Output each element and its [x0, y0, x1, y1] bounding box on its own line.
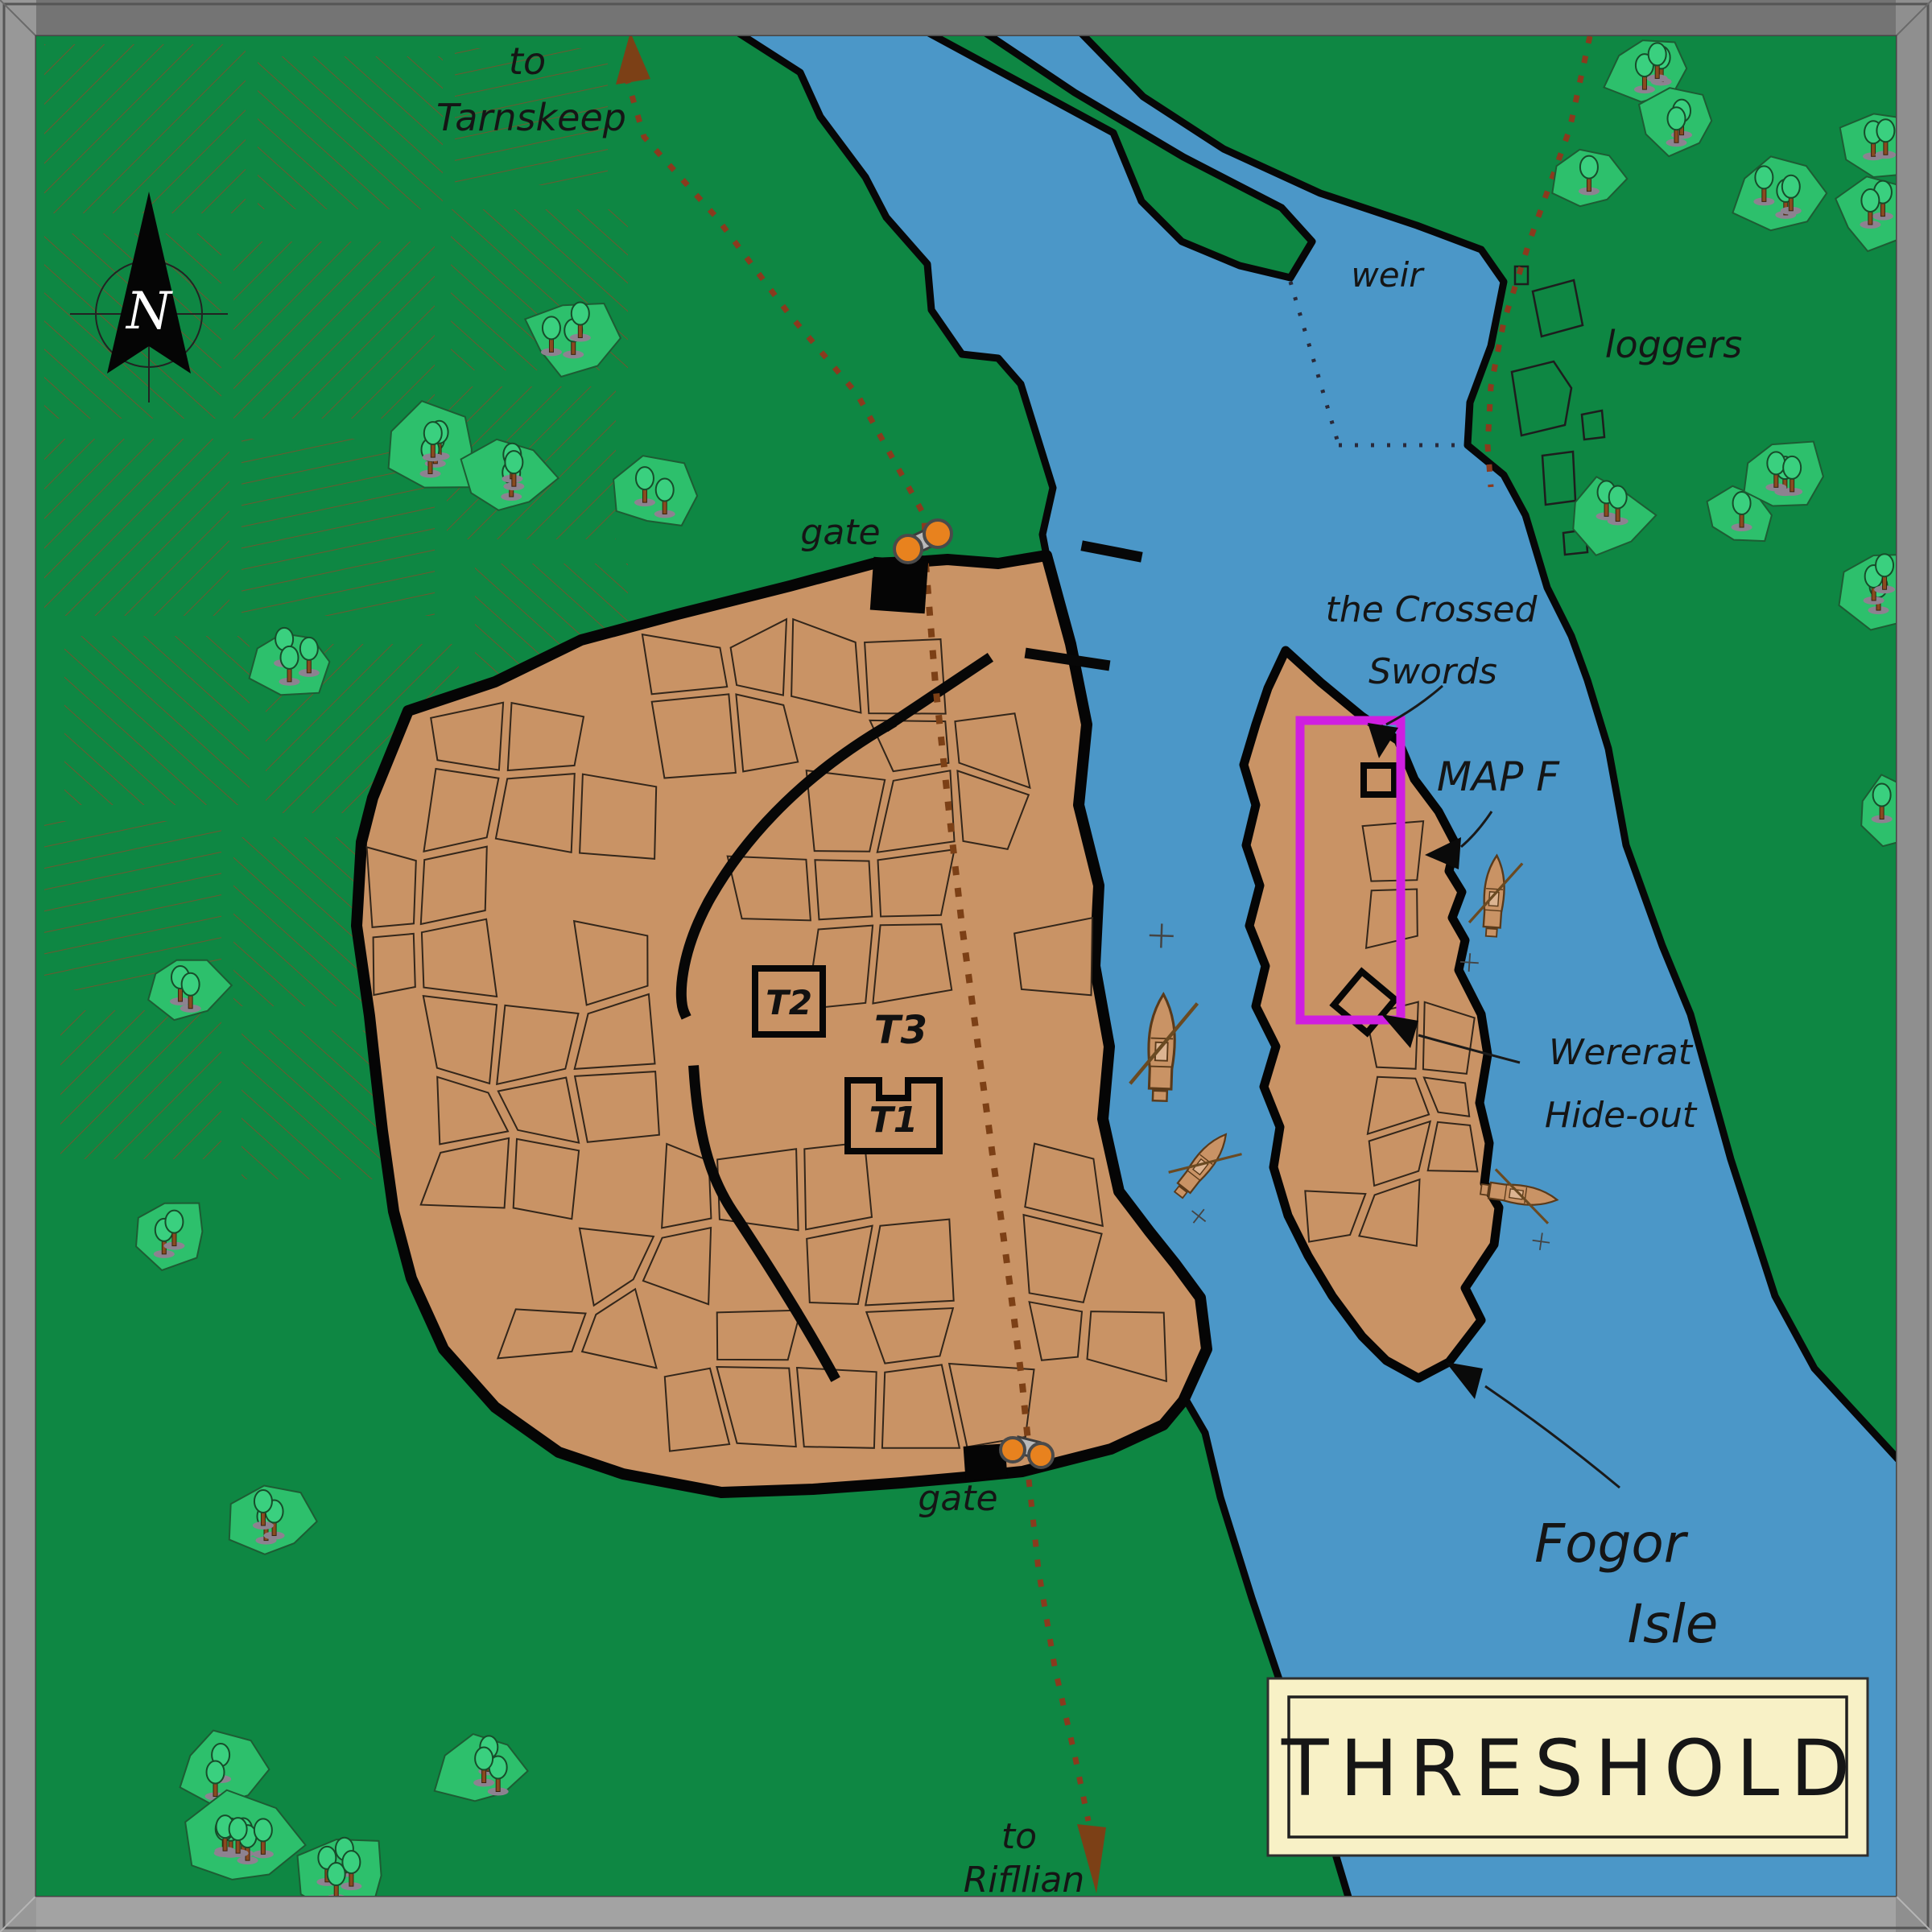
city-block — [652, 694, 736, 778]
tree-icon — [165, 1211, 183, 1233]
label-fogor-isle: Fogor — [1534, 1513, 1689, 1575]
tree-icon — [182, 973, 200, 996]
city-block — [367, 847, 416, 927]
tree-icon — [281, 646, 299, 669]
tree-icon — [1876, 554, 1893, 576]
tree-icon — [505, 451, 522, 473]
city-block — [797, 1368, 877, 1448]
tree-icon — [656, 478, 674, 501]
hatch-patch — [60, 1010, 221, 1159]
compass-north-letter: N — [125, 282, 173, 341]
tree-icon — [1733, 492, 1751, 514]
gate-tower-icon — [894, 535, 922, 563]
city-block — [717, 1149, 799, 1230]
city-block — [514, 1139, 579, 1219]
tree-icon — [1580, 156, 1598, 179]
tree-icon — [543, 316, 560, 339]
label-tarnskeep: to — [509, 39, 546, 83]
label-map-f: MAP F — [1437, 753, 1560, 800]
label-loggers: loggers — [1605, 323, 1743, 366]
hatch-patch — [44, 439, 229, 616]
tree-icon — [300, 638, 318, 660]
city-block — [422, 919, 497, 997]
tree-icon — [1861, 189, 1879, 212]
tree-icon — [1649, 43, 1666, 65]
tree-icon — [1782, 175, 1800, 198]
city-block — [865, 1220, 954, 1306]
tree-icon — [475, 1748, 493, 1770]
tree-icon — [254, 1490, 272, 1513]
tree-icon — [1767, 452, 1785, 474]
hatch-patch — [64, 636, 250, 805]
label-gate-north: gate — [800, 512, 880, 553]
city-block — [421, 847, 487, 924]
label-rifllian: to — [1001, 1816, 1037, 1857]
label-weir: weir — [1351, 255, 1425, 295]
tree-icon — [1667, 107, 1685, 130]
gate-tower-icon — [1001, 1438, 1025, 1462]
tree-icon — [254, 1818, 272, 1841]
city-block — [815, 860, 872, 919]
tree-icon — [207, 1761, 225, 1784]
city-block — [804, 1142, 872, 1229]
hatch-patch — [44, 44, 246, 213]
label-wererat: Wererat — [1549, 1032, 1694, 1073]
tree-icon — [1876, 119, 1894, 142]
label-rifllian2: Rifllian — [964, 1860, 1085, 1901]
label-wererat2: Hide-out — [1545, 1095, 1698, 1136]
city-block — [580, 774, 656, 859]
tree-icon — [636, 467, 654, 489]
crossed-swords-building — [1364, 766, 1394, 795]
label-t1: T1 — [869, 1100, 919, 1141]
tree-icon — [1755, 166, 1773, 188]
city-block — [374, 934, 415, 995]
tree-icon — [342, 1851, 360, 1873]
title-box: THRESHOLD — [1268, 1678, 1868, 1856]
city-block — [1363, 821, 1424, 881]
hatch-patch — [258, 56, 443, 209]
label-gate-south: gate — [918, 1478, 997, 1519]
map-screenshot: N to Tarnskeep weir loggers gate the Cro… — [0, 0, 1932, 1932]
label-crossed-swords2: Swords — [1368, 651, 1497, 692]
map-title: THRESHOLD — [1281, 1724, 1861, 1814]
city-block — [717, 1311, 801, 1360]
tree-icon — [1783, 456, 1801, 479]
label-crossed-swords: the Crossed — [1326, 589, 1538, 630]
label-fogor-isle2: Isle — [1628, 1593, 1719, 1655]
threshold-map: N to Tarnskeep weir loggers gate the Cro… — [0, 0, 1932, 1932]
label-t3: T3 — [874, 1008, 927, 1053]
label-t2: T2 — [766, 983, 812, 1022]
tree-icon — [424, 422, 442, 444]
city-block — [873, 924, 952, 1003]
gate-tower-icon — [924, 520, 952, 547]
city-block — [496, 774, 575, 852]
label-tarnskeep2: Tarnskeep — [436, 96, 626, 139]
city-block — [878, 849, 955, 916]
city-block — [728, 857, 811, 921]
gate-tower-icon — [1029, 1443, 1053, 1468]
hatch-patch — [233, 242, 435, 419]
tree-icon — [229, 1818, 247, 1840]
city-block — [575, 1071, 659, 1142]
tree-icon — [572, 303, 589, 325]
tree-icon — [1609, 486, 1627, 509]
tree-icon — [1873, 784, 1891, 807]
